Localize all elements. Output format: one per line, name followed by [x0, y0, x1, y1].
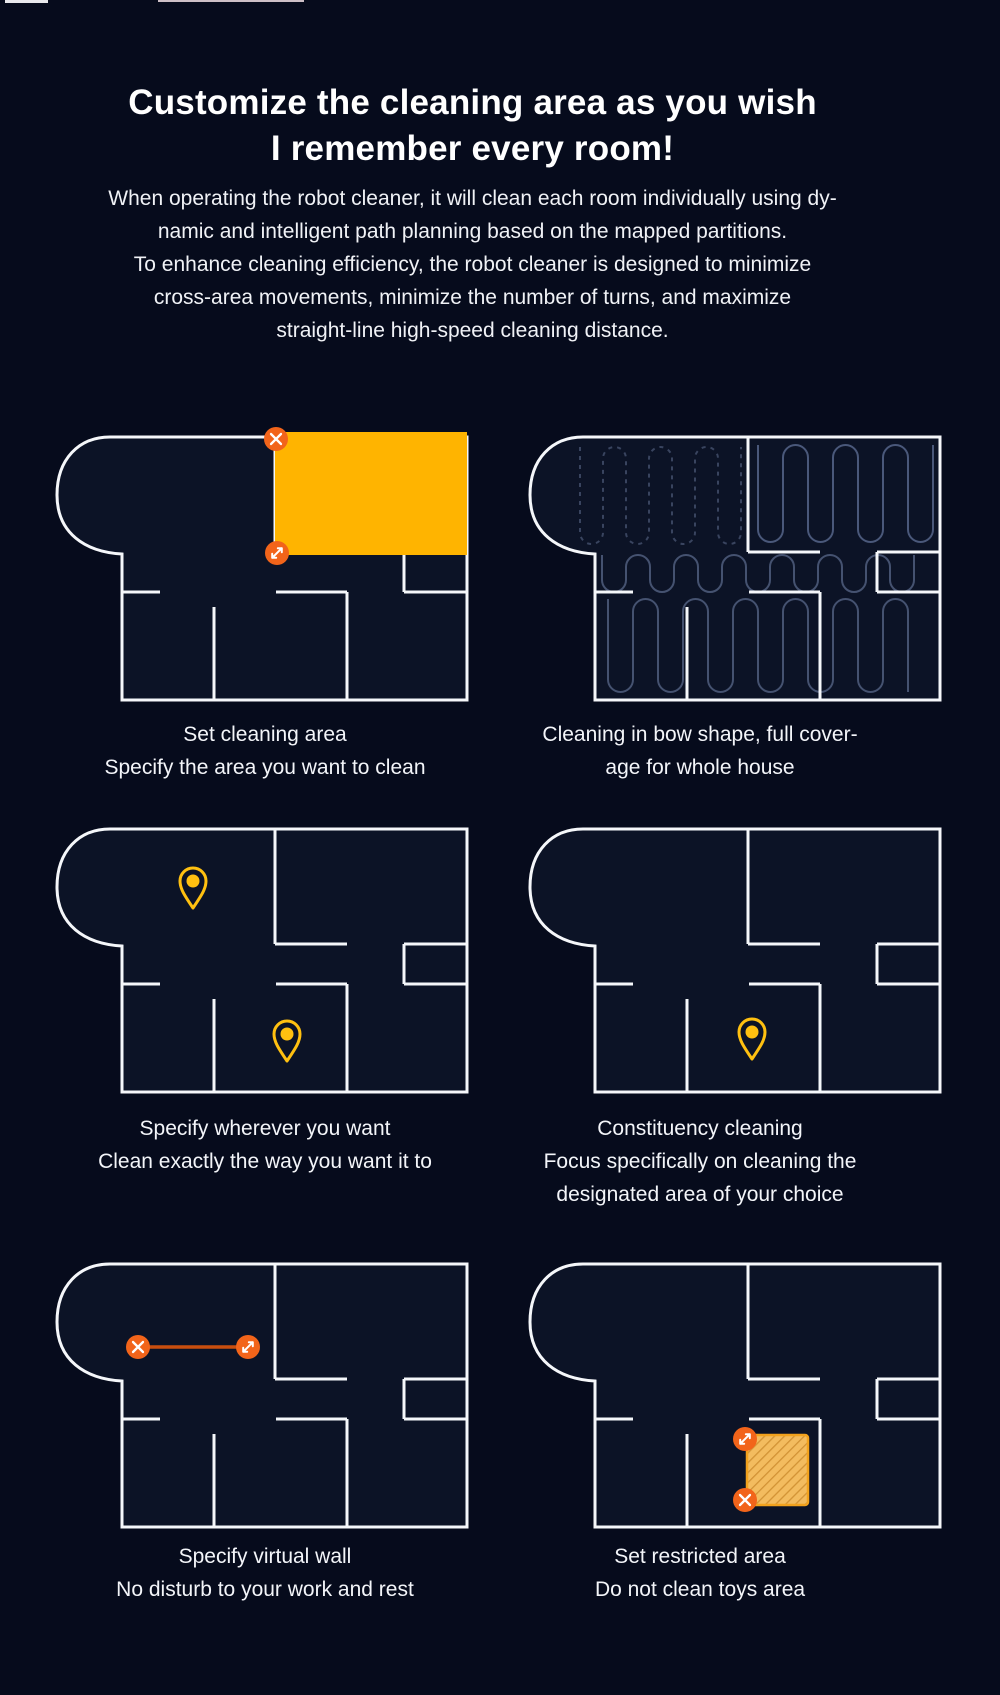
- restricted-area-rect: [747, 1435, 808, 1505]
- close-icon: [264, 427, 288, 451]
- feature-restricted-area: [530, 1264, 940, 1527]
- close-icon: [733, 1488, 757, 1512]
- floor-plan-illustration: [530, 1264, 940, 1527]
- intro-paragraph: When operating the robot cleaner, it wil…: [0, 182, 945, 347]
- diagonal-resize-icon: [733, 1427, 757, 1451]
- caption-line: age for whole house: [488, 751, 912, 784]
- caption-line: No disturb to your work and rest: [55, 1573, 475, 1606]
- top-edge-artifact: [5, 0, 48, 3]
- caption-line: designated area of your choice: [488, 1178, 912, 1211]
- caption-line: Specify the area you want to clean: [55, 751, 475, 784]
- promo-page: Customize the cleaning area as you wish …: [0, 0, 1000, 1695]
- caption-set-cleaning-area: Set cleaning area Specify the area you w…: [55, 718, 475, 784]
- caption-bow-shape: Cleaning in bow shape, full cover- age f…: [488, 718, 912, 784]
- floor-plan-illustration: [530, 437, 940, 700]
- caption-restricted-area: Set restricted area Do not clean toys ar…: [488, 1540, 912, 1606]
- top-edge-artifact-2: [158, 0, 304, 2]
- caption-line: Constituency cleaning: [488, 1112, 912, 1145]
- page-title: Customize the cleaning area as you wish …: [0, 80, 945, 172]
- selected-cleaning-area-rect: [275, 432, 467, 555]
- intro-line: straight-line high-speed cleaning distan…: [0, 314, 945, 347]
- floor-plan-illustration: [57, 829, 467, 1092]
- diagonal-resize-icon: [236, 1335, 260, 1359]
- caption-constituency: Constituency cleaning Focus specifically…: [488, 1112, 912, 1211]
- intro-line: namic and intelligent path planning base…: [0, 215, 945, 248]
- caption-line: Cleaning in bow shape, full cover-: [488, 718, 912, 751]
- title-line-1: Customize the cleaning area as you wish: [0, 80, 945, 126]
- caption-line: Specify wherever you want: [55, 1112, 475, 1145]
- floor-plan-illustration: [57, 1264, 467, 1527]
- feature-virtual-wall: [57, 1264, 467, 1527]
- caption-line: Clean exactly the way you want it to: [55, 1145, 475, 1178]
- caption-line: Do not clean toys area: [488, 1573, 912, 1606]
- title-line-2: I remember every room!: [0, 126, 945, 172]
- floor-plan-illustration: [57, 437, 467, 700]
- caption-specify-wherever: Specify wherever you want Clean exactly …: [55, 1112, 475, 1178]
- caption-line: Focus specifically on cleaning the: [488, 1145, 912, 1178]
- feature-set-cleaning-area: [57, 437, 467, 700]
- feature-bow-shape-cleaning: [530, 437, 940, 700]
- intro-line: To enhance cleaning efficiency, the robo…: [0, 248, 945, 281]
- feature-constituency-cleaning: [530, 829, 940, 1092]
- caption-line: Set restricted area: [488, 1540, 912, 1573]
- diagonal-resize-icon: [265, 541, 289, 565]
- intro-line: cross-area movements, minimize the numbe…: [0, 281, 945, 314]
- intro-line: When operating the robot cleaner, it wil…: [0, 182, 945, 215]
- caption-line: Set cleaning area: [55, 718, 475, 751]
- caption-line: Specify virtual wall: [55, 1540, 475, 1573]
- feature-specify-wherever: [57, 829, 467, 1092]
- floor-plan-illustration: [530, 829, 940, 1092]
- caption-virtual-wall: Specify virtual wall No disturb to your …: [55, 1540, 475, 1606]
- close-icon: [126, 1335, 150, 1359]
